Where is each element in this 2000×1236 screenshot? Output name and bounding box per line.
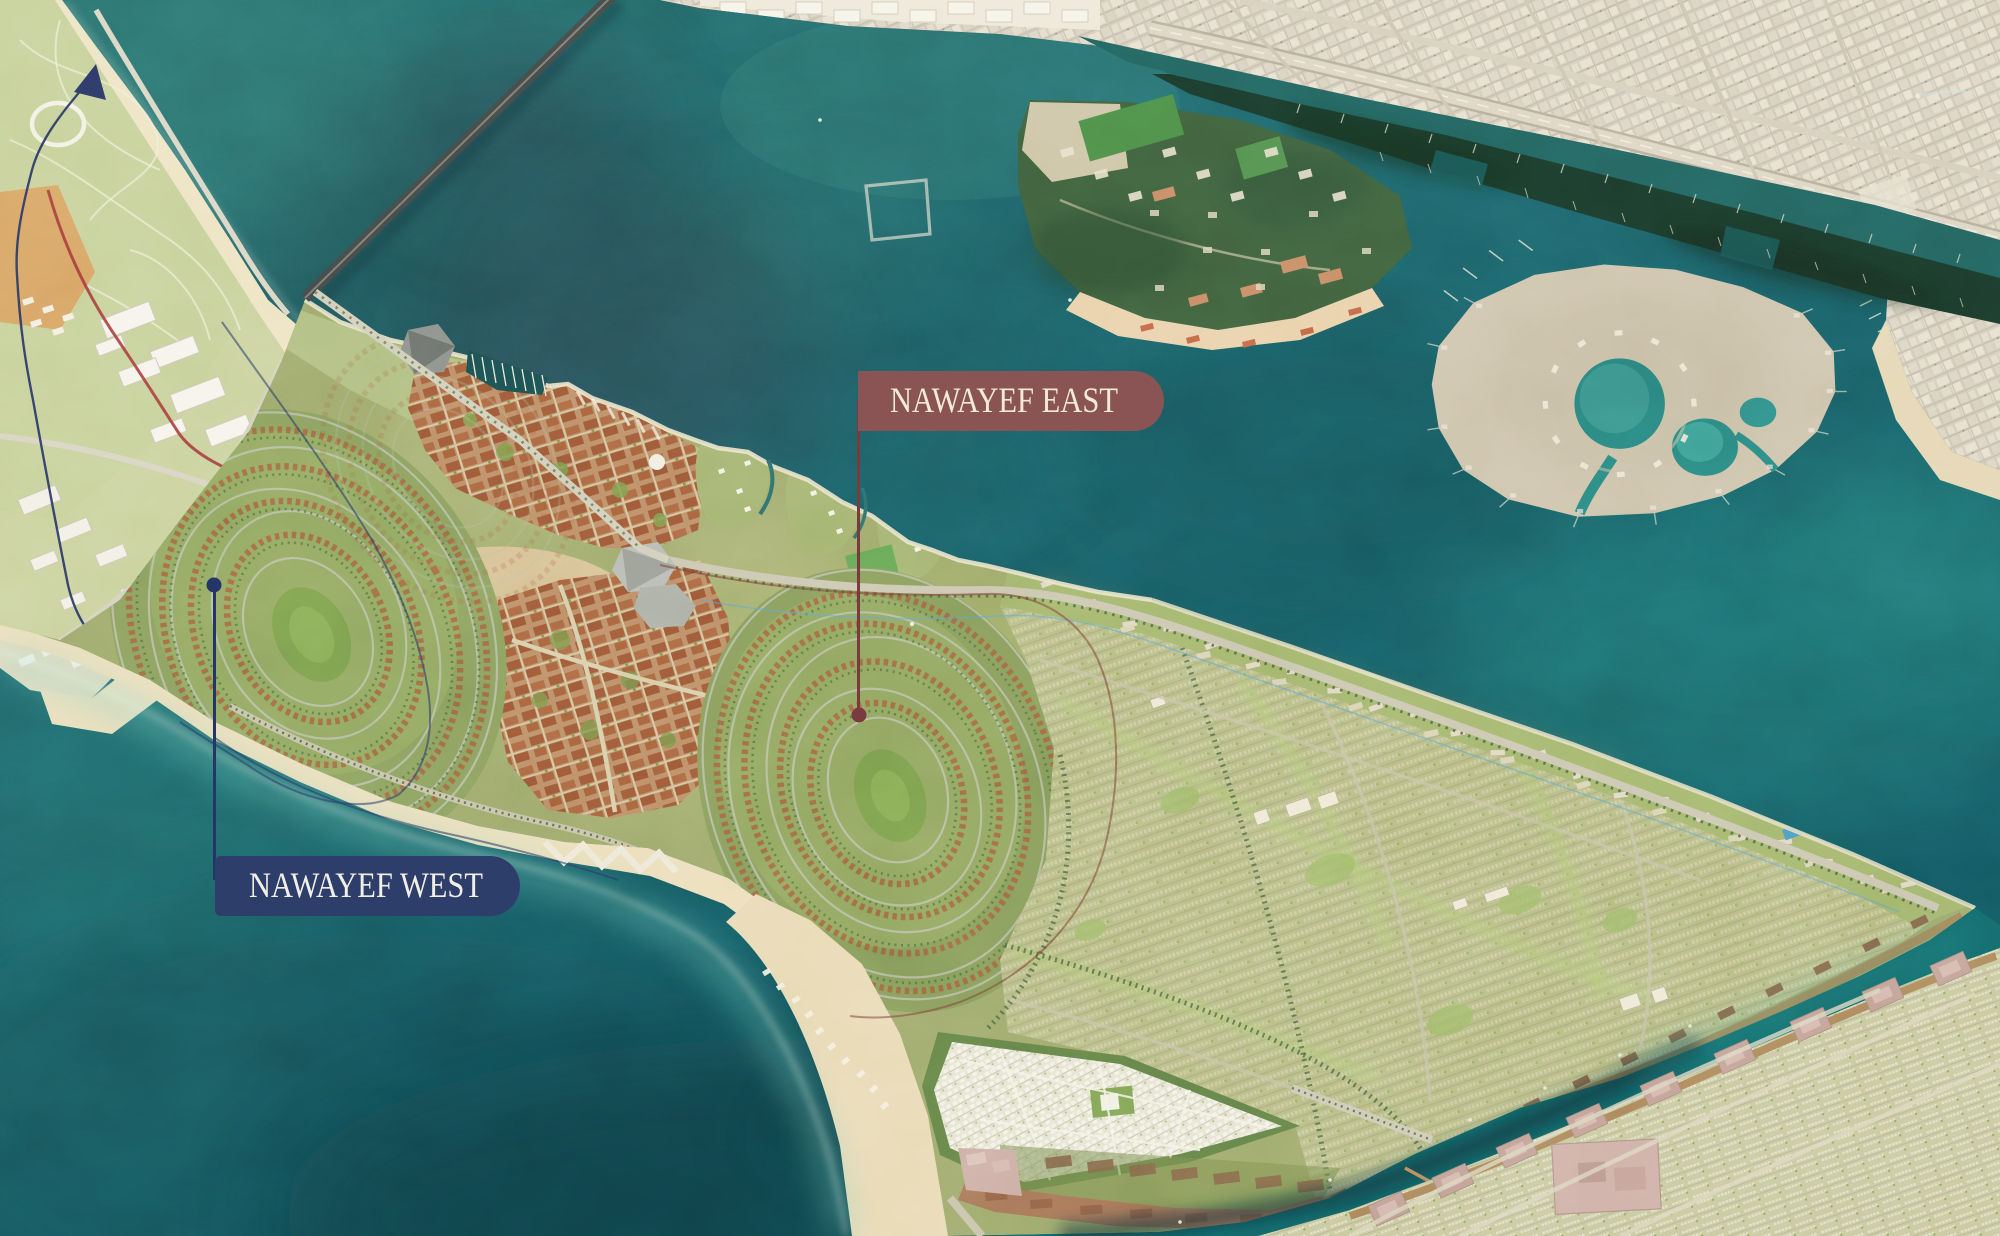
svg-text:NAWAYEF EAST: NAWAYEF EAST — [890, 380, 1118, 420]
svg-text:NAWAYEF WEST: NAWAYEF WEST — [249, 865, 483, 905]
